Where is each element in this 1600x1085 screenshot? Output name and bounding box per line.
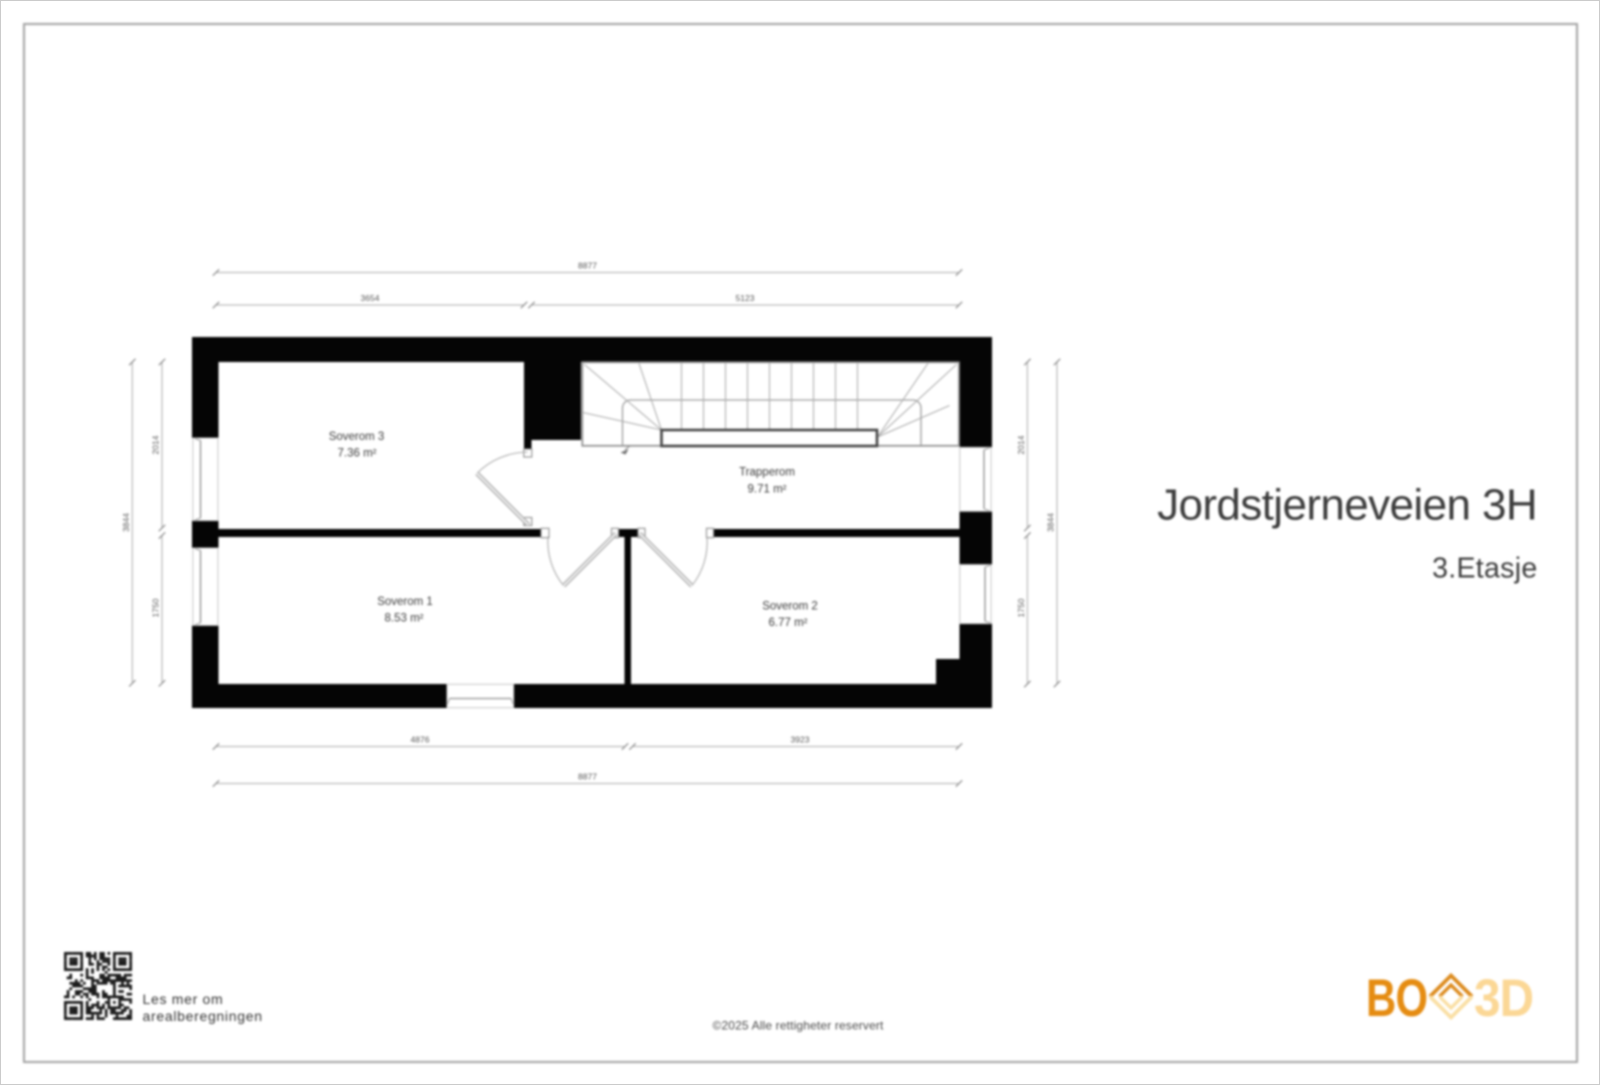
- svg-text:1750: 1750: [1016, 598, 1026, 617]
- svg-text:3.Etasje: 3.Etasje: [1432, 553, 1537, 585]
- svg-text:6.77 m²: 6.77 m²: [769, 617, 808, 629]
- svg-text:3D: 3D: [1474, 968, 1533, 1028]
- svg-text:3844: 3844: [121, 513, 131, 532]
- svg-text:3923: 3923: [791, 735, 810, 745]
- svg-text:2014: 2014: [1016, 435, 1026, 454]
- svg-text:arealberegningen: arealberegningen: [143, 1008, 263, 1024]
- svg-text:Soverom 2: Soverom 2: [762, 601, 818, 613]
- svg-text:4876: 4876: [411, 735, 430, 745]
- svg-text:2014: 2014: [151, 435, 161, 454]
- svg-text:9.71 m²: 9.71 m²: [748, 484, 787, 496]
- svg-text:7.36 m²: 7.36 m²: [338, 448, 377, 460]
- svg-text:BO: BO: [1366, 969, 1427, 1028]
- svg-text:Trapperom: Trapperom: [739, 467, 795, 479]
- svg-text:Soverom 1: Soverom 1: [377, 596, 433, 608]
- svg-text:Les mer om: Les mer om: [143, 991, 224, 1007]
- svg-text:Soverom 3: Soverom 3: [329, 431, 385, 443]
- svg-text:8877: 8877: [578, 772, 597, 782]
- svg-text:8877: 8877: [578, 261, 597, 271]
- svg-text:3654: 3654: [361, 293, 380, 303]
- svg-text:©2025 Alle rettigheter reserve: ©2025 Alle rettigheter reservert: [712, 1019, 884, 1033]
- svg-text:3844: 3844: [1046, 513, 1056, 532]
- svg-text:5123: 5123: [736, 293, 755, 303]
- svg-text:8.53 m²: 8.53 m²: [385, 613, 424, 625]
- svg-text:1750: 1750: [151, 598, 161, 617]
- svg-text:Jordstjerneveien 3H: Jordstjerneveien 3H: [1157, 481, 1537, 530]
